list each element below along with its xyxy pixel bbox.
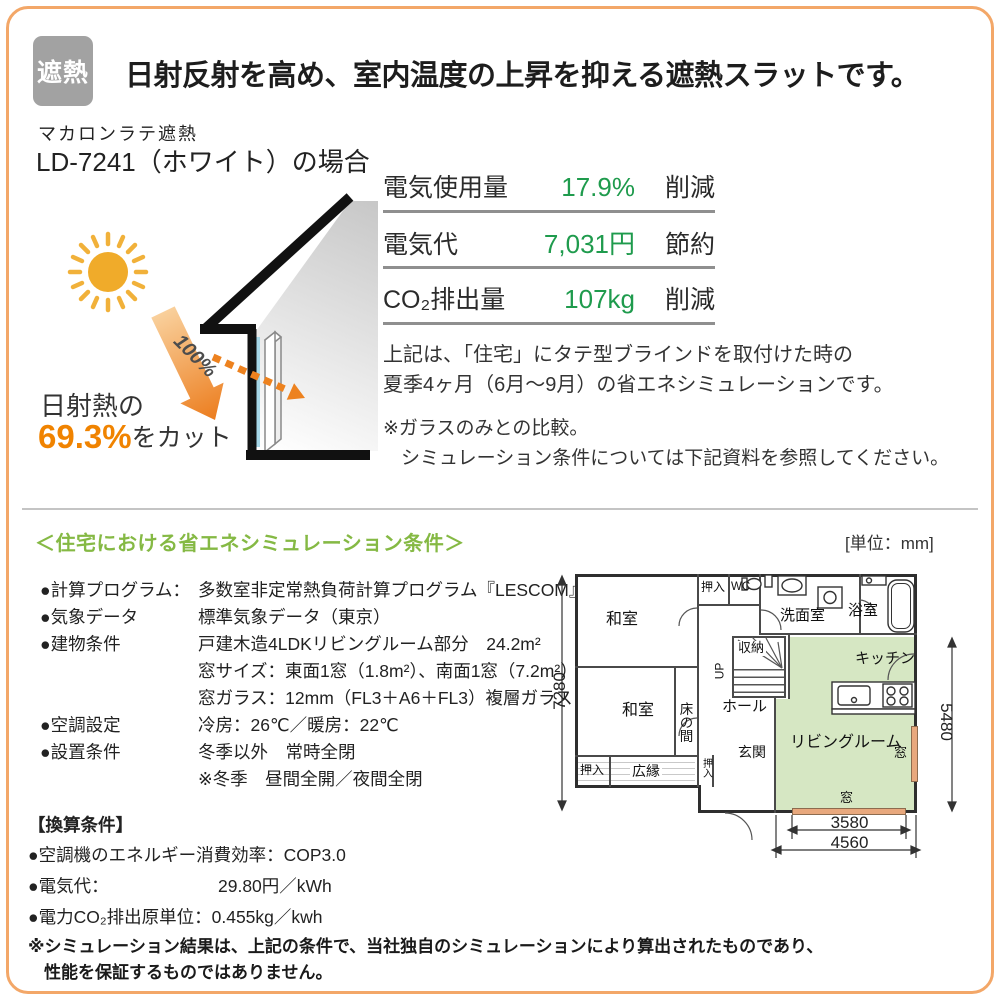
item-label: ●計算プログラム： <box>40 577 198 604</box>
item-value: 29.80円／kWh <box>218 871 332 902</box>
room-label-kitchen: キッチン <box>855 650 915 667</box>
description-line: 上記は、「住宅」にタテ型ブラインドを取付けた時の <box>383 340 894 370</box>
shanetsu-badge: 遮熱 <box>33 36 93 106</box>
item-label: ●電力CO₂排出原単位： <box>28 902 212 933</box>
list-item: ●電気代：29.80円／kWh <box>28 871 346 902</box>
item-label: ●気象データ <box>40 604 198 631</box>
disclaimer-line: 性能を保証するものではありません。 <box>28 960 823 986</box>
room-label-shuno: 収納 <box>736 641 766 656</box>
item-label <box>40 685 198 712</box>
room-label-living: リビングルーム <box>790 734 902 752</box>
row-label: 電気使用量 <box>383 168 508 204</box>
row-label: 電気代 <box>383 225 458 261</box>
room-label-washitsu1: 和室 <box>606 611 638 629</box>
window-label-right: 窓 <box>894 746 907 761</box>
item-label: ●設置条件 <box>40 739 198 766</box>
row-value: 107kg <box>505 284 635 315</box>
room-label-oshiire-sm: 押入 <box>700 758 712 778</box>
description-line: 夏季4ヶ月（6月～9月）の省エネシミュレーションです。 <box>383 370 894 400</box>
item-label: ●空調設定 <box>40 712 198 739</box>
row-value: 7,031円 <box>458 224 635 261</box>
table-row: 電気代 7,031円 節約 <box>383 224 715 269</box>
energy-savings-table: 電気使用量 17.9% 削減 電気代 7,031円 節約 CO₂排出量 107k… <box>383 168 715 336</box>
list-item: ●電力CO₂排出原単位：0.455kg／kwh <box>28 902 346 933</box>
item-label: ●建物条件 <box>40 631 198 658</box>
item-value: COP3.0 <box>284 840 346 871</box>
room-label-tokonoma: 床の間 <box>677 702 693 743</box>
item-label: ●空調機のエネルギー消費効率： <box>28 840 284 871</box>
item-content: 戸建木造4LDKリビングルーム部分 24.2m² <box>198 631 541 658</box>
room-label-yokushitsu: 浴室 <box>848 602 878 619</box>
list-item: 窓サイズ：東面1窓（1.8m²）、南面1窓（7.2m²） <box>40 658 586 685</box>
dimension-inner: 3580 <box>812 813 887 833</box>
conditions-list: ●計算プログラム：多数室非定常熱負荷計算プログラム『LESCOM』 ●気象データ… <box>40 577 586 793</box>
disclaimer: ※シミュレーション結果は、上記の条件で、当社独自のシミュレーションにより算出され… <box>28 934 823 986</box>
note-line: シミュレーション条件については下記資料を参照してください。 <box>383 444 949 474</box>
room-label-washitsu2: 和室 <box>622 702 654 720</box>
room-label-hiroen: 広縁 <box>630 763 662 779</box>
floor-plan: 和室 押入 WC 洗面室 浴室 収納 UP キッチン ホール 和室 床の間 玄関… <box>552 558 998 893</box>
room-label-oshiire-top: 押入 <box>701 581 725 595</box>
item-label <box>40 766 198 793</box>
sun-icon <box>70 234 146 310</box>
dimension-outer: 4560 <box>807 833 892 853</box>
row-suffix: 削減 <box>635 168 715 204</box>
item-value: 0.455kg／kwh <box>212 902 323 933</box>
table-row: 電気使用量 17.9% 削減 <box>383 168 715 213</box>
item-content: 窓ガラス：12mm（FL3＋A6＋FL3）複層ガラス <box>198 685 573 712</box>
simulation-description: 上記は、「住宅」にタテ型ブラインドを取付けた時の 夏季4ヶ月（6月～9月）の省エ… <box>383 340 894 400</box>
list-item: ●空調機のエネルギー消費効率：COP3.0 <box>28 840 346 871</box>
list-item: ●空調設定冷房：26℃／暖房：22℃ <box>40 712 586 739</box>
item-content: 多数室非定常熱負荷計算プログラム『LESCOM』 <box>198 577 586 604</box>
room-label-senmenshitsu: 洗面室 <box>780 607 825 624</box>
room-label-up: UP <box>713 663 727 680</box>
heat-cut-percent: 69.3% <box>38 418 132 455</box>
floorplan-linework <box>552 558 998 893</box>
unit-label: [単位：mm] <box>845 529 934 554</box>
list-item: 窓ガラス：12mm（FL3＋A6＋FL3）複層ガラス <box>40 685 586 712</box>
note-line: ※ガラスのみとの比較。 <box>383 414 949 444</box>
dimension-right: 5480 <box>936 692 956 752</box>
room-label-oshiire-bl: 押入 <box>580 764 604 778</box>
item-label <box>40 658 198 685</box>
simulation-note: ※ガラスのみとの比較。 シミュレーション条件については下記資料を参照してください… <box>383 414 949 474</box>
heat-cut-suffix: をカット <box>132 424 232 452</box>
list-item: ●計算プログラム：多数室非定常熱負荷計算プログラム『LESCOM』 <box>40 577 586 604</box>
row-suffix: 削減 <box>635 280 715 316</box>
item-content: 冬季以外 常時全閉 <box>198 739 356 766</box>
item-content: 冷房：26℃／暖房：22℃ <box>198 712 399 739</box>
row-label: CO₂排出量 <box>383 280 505 316</box>
product-model: LD-7241（ホワイト）の場合 <box>36 142 370 179</box>
item-content: ※冬季 昼間全開／夜間全閉 <box>198 766 423 793</box>
list-item: ●気象データ標準気象データ（東京） <box>40 604 586 631</box>
heat-cut-value-line: 69.3%をカット <box>38 418 232 456</box>
kitchen-counter <box>832 682 915 714</box>
section-divider <box>22 508 978 510</box>
conditions-heading: ＜住宅における省エネシミュレーション条件＞ <box>35 527 465 556</box>
item-content: 標準気象データ（東京） <box>198 604 391 631</box>
window-label-bottom: 窓 <box>840 791 853 806</box>
disclaimer-line: ※シミュレーション結果は、上記の条件で、当社独自のシミュレーションにより算出され… <box>28 934 823 960</box>
room-label-genkan: 玄関 <box>738 744 766 760</box>
conversion-list: ●空調機のエネルギー消費効率：COP3.0 ●電気代：29.80円／kWh ●電… <box>28 840 346 933</box>
list-item: ●建物条件戸建木造4LDKリビングルーム部分 24.2m² <box>40 631 586 658</box>
item-label: ●電気代： <box>28 871 218 902</box>
list-item: ※冬季 昼間全開／夜間全閉 <box>40 766 586 793</box>
list-item: ●設置条件冬季以外 常時全閉 <box>40 739 586 766</box>
table-row: CO₂排出量 107kg 削減 <box>383 280 715 325</box>
room-label-hall: ホール <box>722 698 767 715</box>
conversion-heading: 【換算条件】 <box>28 812 133 837</box>
room-label-wc: WC <box>731 581 750 594</box>
row-suffix: 節約 <box>635 225 715 261</box>
row-value: 17.9% <box>508 172 635 203</box>
blind-slat <box>265 332 281 452</box>
page-title: 日射反射を高め、室内温度の上昇を抑える遮熱スラットです。 <box>125 52 919 94</box>
dimension-left: 7280 <box>550 661 570 721</box>
item-content: 窓サイズ：東面1窓（1.8m²）、南面1窓（7.2m²） <box>198 658 578 685</box>
